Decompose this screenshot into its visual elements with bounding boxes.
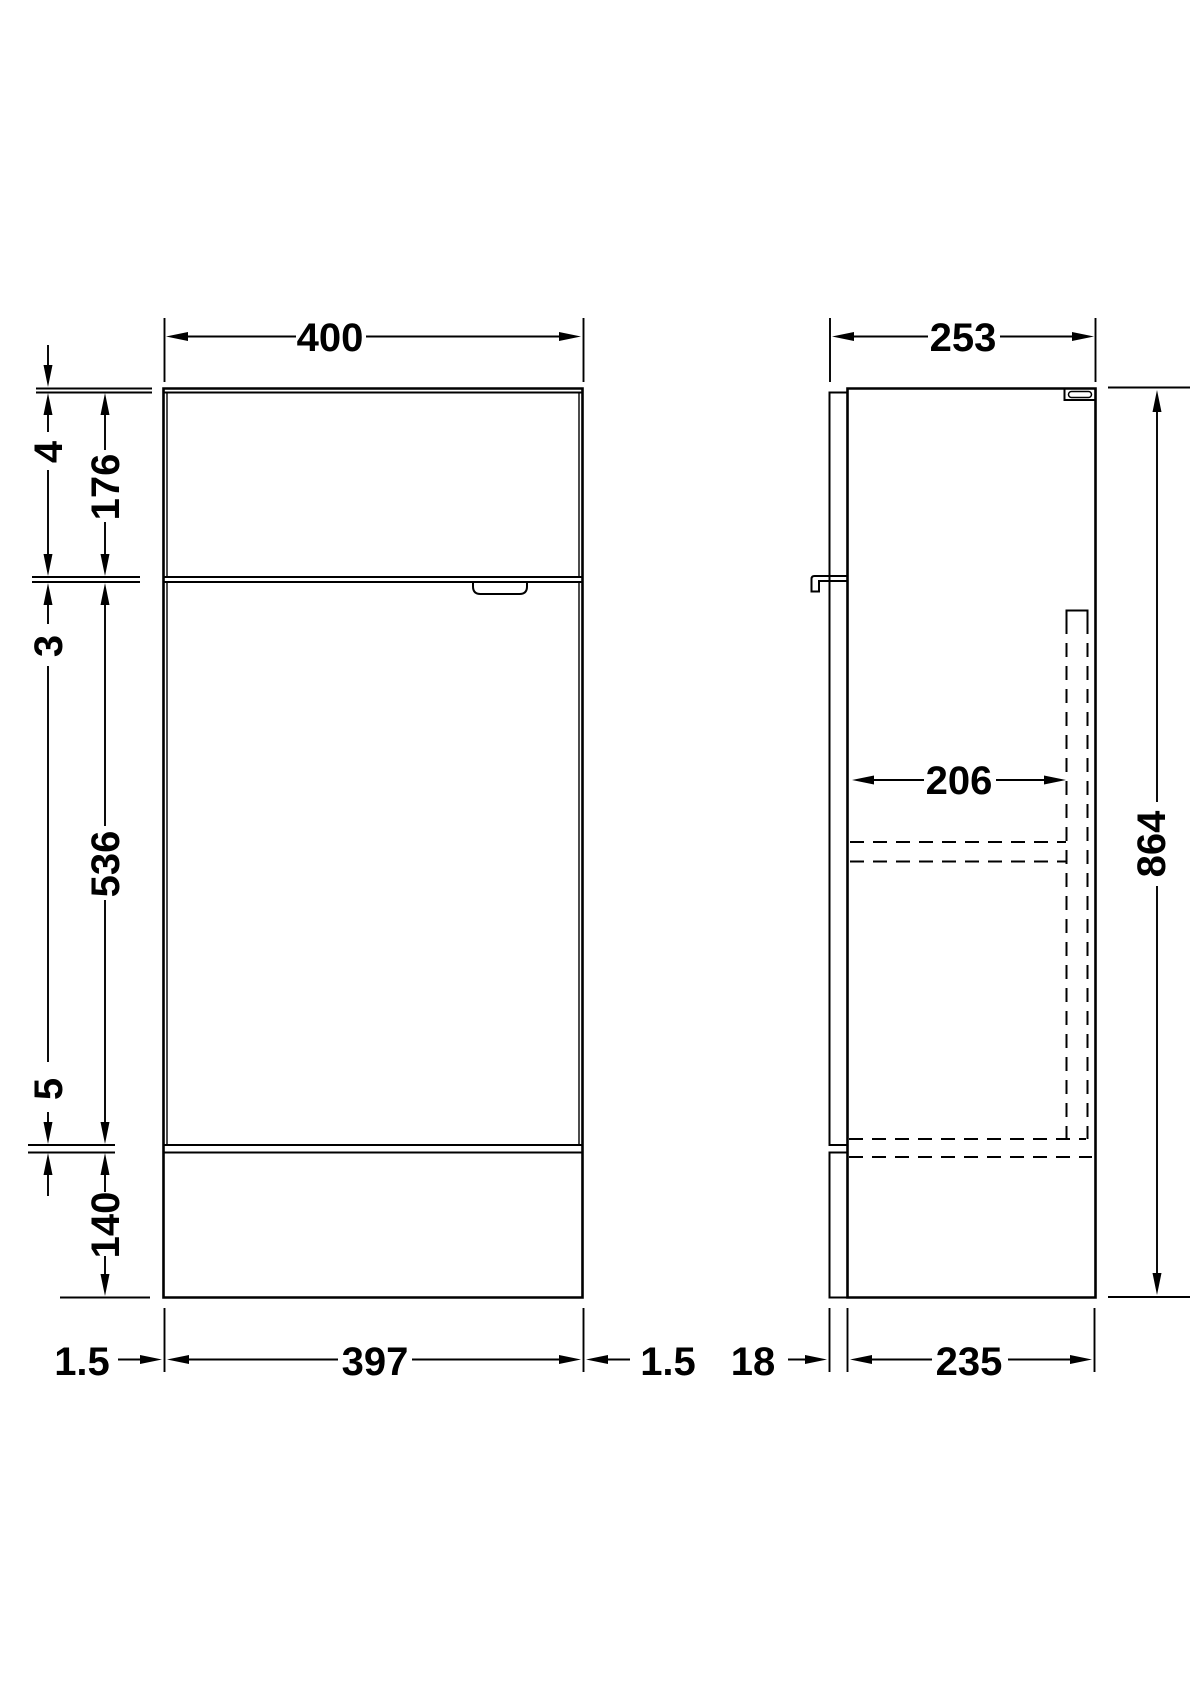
front-door-bottom-gap-lines — [164, 1145, 583, 1153]
front-drawer-door-divider-lines — [164, 577, 583, 582]
dim-label-carcass-depth: 235 — [936, 1340, 1003, 1384]
front-view-dimensions: 400 4 176 3 536 5 140 1.5 397 1.5 — [27, 316, 696, 1384]
front-panel-inner-edges — [167, 393, 579, 1145]
technical-drawing-sheet: 400 4 176 3 536 5 140 1.5 397 1.5 253 20… — [0, 0, 1200, 1698]
dim-label-front-panel-thickness: 18 — [731, 1340, 776, 1384]
side-hidden-base-dashed-lines — [849, 1139, 1092, 1157]
side-fixing-clip-slot — [1069, 392, 1092, 398]
dim-label-base-left-inset: 1.5 — [54, 1340, 110, 1384]
dim-label-door-plinth-gap: 5 — [27, 1078, 71, 1100]
dim-label-drawer-front-height: 176 — [84, 454, 128, 521]
front-dimension-arrowheads — [44, 332, 609, 1364]
side-view-dimensions: 253 206 864 18 235 — [731, 316, 1190, 1384]
side-plinth-panel — [830, 1153, 848, 1298]
dim-label-total-height: 864 — [1130, 810, 1174, 877]
side-door-panel — [830, 393, 848, 1146]
front-dimension-lines — [48, 337, 630, 1360]
dim-label-side-depth: 253 — [930, 316, 997, 360]
side-dimension-lines — [788, 337, 1157, 1360]
dim-label-drawer-door-gap: 3 — [27, 635, 71, 657]
dim-label-front-width: 400 — [297, 316, 364, 360]
dim-label-plinth-height: 140 — [84, 1192, 128, 1259]
front-door-handle-notch — [473, 582, 527, 594]
side-hidden-duct-top-cap — [1067, 611, 1088, 621]
dim-label-worktop-thickness: 4 — [27, 440, 71, 463]
side-hidden-shelf-dashed-lines — [850, 842, 1066, 862]
dim-label-base-width: 397 — [342, 1340, 409, 1384]
side-hidden-duct-dashed-lines — [1067, 620, 1088, 1139]
front-view — [164, 389, 583, 1298]
side-view — [812, 389, 1096, 1298]
side-dimension-arrowheads — [805, 332, 1162, 1364]
dim-label-door-height: 536 — [84, 831, 128, 898]
cabinet-dimension-drawing: 400 4 176 3 536 5 140 1.5 397 1.5 253 20… — [0, 0, 1200, 1698]
dim-label-internal-clear-depth: 206 — [926, 759, 993, 803]
dim-label-base-right-inset: 1.5 — [640, 1340, 696, 1384]
front-carcass-outline — [164, 389, 583, 1298]
